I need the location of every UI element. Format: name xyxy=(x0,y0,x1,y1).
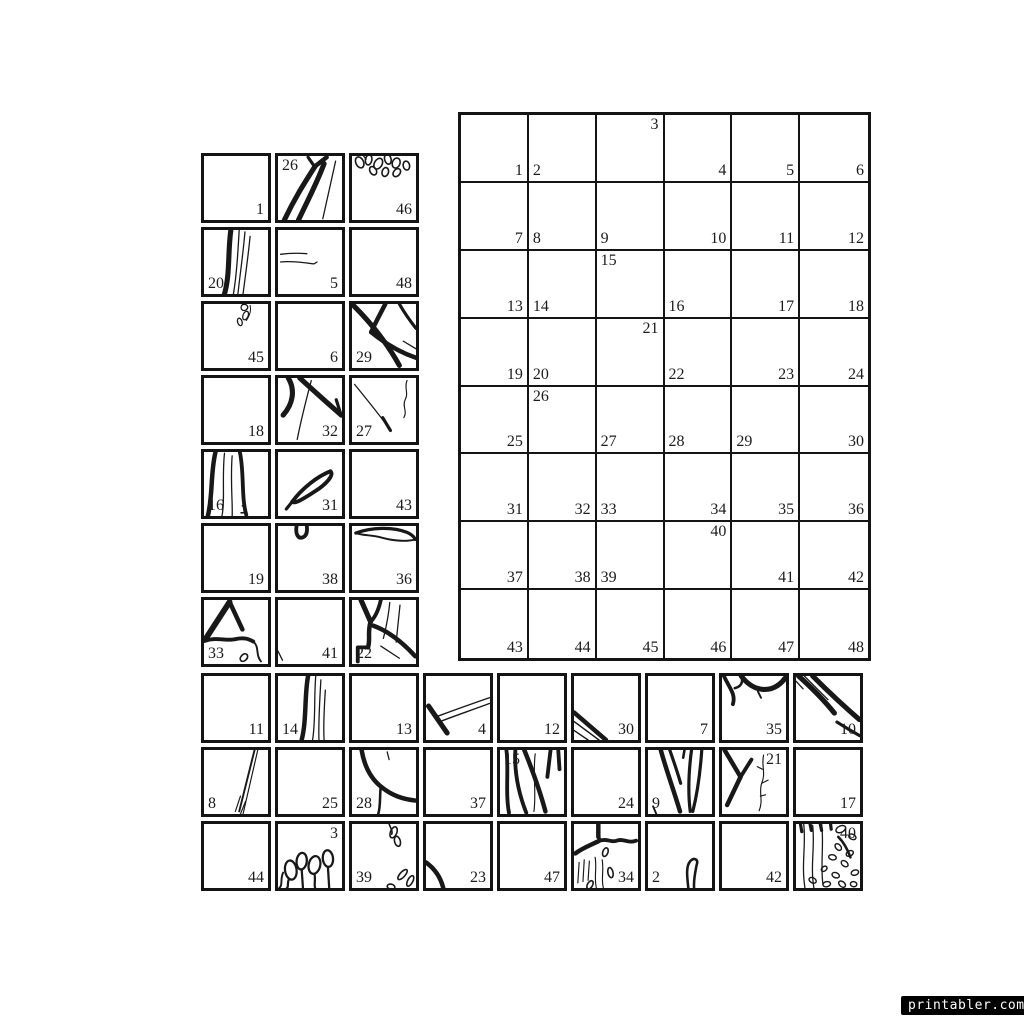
puzzle-tile-11: 11 xyxy=(201,673,271,743)
grid-cell-10: 10 xyxy=(665,183,733,251)
puzzle-tile-5: 5 xyxy=(275,227,345,297)
puzzle-tile-16: 16 xyxy=(201,449,271,519)
grid-cell-17: 17 xyxy=(732,251,800,319)
grid-cell-number: 19 xyxy=(507,367,523,383)
tile-number: 38 xyxy=(322,572,338,588)
grid-cell-34: 34 xyxy=(665,454,733,522)
grid-cell-number: 6 xyxy=(856,163,864,179)
grid-cell-number: 41 xyxy=(778,570,794,586)
tile-number: 44 xyxy=(248,870,264,886)
puzzle-tile-27: 27 xyxy=(349,375,419,445)
puzzle-tile-19: 19 xyxy=(201,523,271,593)
tile-number: 1 xyxy=(256,202,264,218)
tile-number: 23 xyxy=(470,870,486,886)
grid-cell-16: 16 xyxy=(665,251,733,319)
grid-cell-number: 10 xyxy=(710,231,726,247)
puzzle-tile-14: 14 xyxy=(275,673,345,743)
grid-cell-38: 38 xyxy=(529,522,597,590)
grid-cell-14: 14 xyxy=(529,251,597,319)
grid-cell-number: 40 xyxy=(710,524,726,540)
tile-number: 33 xyxy=(208,646,224,662)
tile-number: 5 xyxy=(330,276,338,292)
puzzle-tile-2: 2 xyxy=(645,821,715,891)
tile-number: 24 xyxy=(618,796,634,812)
tile-number: 48 xyxy=(396,276,412,292)
grid-cell-number: 44 xyxy=(575,640,591,656)
grid-cell-23: 23 xyxy=(732,319,800,387)
grid-cell-number: 26 xyxy=(533,389,549,405)
puzzle-tile-4: 4 xyxy=(423,673,493,743)
tile-number: 47 xyxy=(544,870,560,886)
worksheet-page: 126462054845629183227163143193836334122 … xyxy=(0,0,1024,1024)
grid-cell-number: 34 xyxy=(710,502,726,518)
grid-cell-number: 30 xyxy=(848,434,864,450)
grid-cell-41: 41 xyxy=(732,522,800,590)
grid-cell-number: 27 xyxy=(601,434,617,450)
grid-cell-number: 22 xyxy=(669,367,685,383)
puzzle-tile-26: 26 xyxy=(275,153,345,223)
puzzle-tile-34: 34 xyxy=(571,821,641,891)
grid-cell-number: 24 xyxy=(848,367,864,383)
grid-cell-2: 2 xyxy=(529,115,597,183)
grid-cell-33: 33 xyxy=(597,454,665,522)
grid-cell-4: 4 xyxy=(665,115,733,183)
grid-cell-number: 33 xyxy=(601,502,617,518)
tile-number: 26 xyxy=(282,158,298,174)
grid-cell-45: 45 xyxy=(597,590,665,658)
tile-number: 16 xyxy=(208,498,224,514)
grid-cell-29: 29 xyxy=(732,387,800,455)
puzzle-tile-25: 25 xyxy=(275,747,345,817)
grid-cell-37: 37 xyxy=(461,522,529,590)
tile-number: 11 xyxy=(249,722,264,738)
grid-cell-number: 15 xyxy=(601,253,617,269)
grid-cell-number: 42 xyxy=(848,570,864,586)
puzzle-tile-6: 6 xyxy=(275,301,345,371)
puzzle-tile-15: 15 xyxy=(497,747,567,817)
grid-cell-number: 31 xyxy=(507,502,523,518)
grid-cell-number: 32 xyxy=(575,502,591,518)
grid-cell-35: 35 xyxy=(732,454,800,522)
grid-cell-18: 18 xyxy=(800,251,868,319)
grid-cell-25: 25 xyxy=(461,387,529,455)
puzzle-tile-45: 45 xyxy=(201,301,271,371)
grid-cell-20: 20 xyxy=(529,319,597,387)
tile-number: 31 xyxy=(322,498,338,514)
tile-number: 22 xyxy=(356,646,372,662)
grid-cell-number: 20 xyxy=(533,367,549,383)
puzzle-tile-24: 24 xyxy=(571,747,641,817)
grid-cell-43: 43 xyxy=(461,590,529,658)
puzzle-tile-38: 38 xyxy=(275,523,345,593)
tile-number: 46 xyxy=(396,202,412,218)
puzzle-tile-28: 28 xyxy=(349,747,419,817)
grid-cell-number: 16 xyxy=(669,299,685,315)
grid-cell-19: 19 xyxy=(461,319,529,387)
grid-cell-27: 27 xyxy=(597,387,665,455)
left-tile-group: 126462054845629183227163143193836334122 xyxy=(201,153,419,667)
puzzle-tile-31: 31 xyxy=(275,449,345,519)
tile-number: 14 xyxy=(282,722,298,738)
puzzle-tile-17: 17 xyxy=(793,747,863,817)
puzzle-tile-42: 42 xyxy=(719,821,789,891)
grid-cell-48: 48 xyxy=(800,590,868,658)
tile-number: 28 xyxy=(356,796,372,812)
grid-cell-1: 1 xyxy=(461,115,529,183)
grid-cell-number: 2 xyxy=(533,163,541,179)
grid-cell-number: 37 xyxy=(507,570,523,586)
grid-cell-number: 13 xyxy=(507,299,523,315)
puzzle-tile-12: 12 xyxy=(497,673,567,743)
grid-cell-13: 13 xyxy=(461,251,529,319)
tile-number: 27 xyxy=(356,424,372,440)
grid-cell-7: 7 xyxy=(461,183,529,251)
tile-number: 9 xyxy=(652,796,660,812)
puzzle-tile-13: 13 xyxy=(349,673,419,743)
puzzle-tile-47: 47 xyxy=(497,821,567,891)
puzzle-tile-18: 18 xyxy=(201,375,271,445)
grid-cell-number: 29 xyxy=(736,434,752,450)
tile-number: 43 xyxy=(396,498,412,514)
tile-number: 25 xyxy=(322,796,338,812)
grid-cell-number: 23 xyxy=(778,367,794,383)
grid-cell-44: 44 xyxy=(529,590,597,658)
puzzle-tile-10: 10 xyxy=(793,673,863,743)
grid-cell-26: 26 xyxy=(529,387,597,455)
grid-cell-number: 3 xyxy=(651,117,659,133)
grid-cell-number: 9 xyxy=(601,231,609,247)
grid-cell-number: 46 xyxy=(710,640,726,656)
puzzle-tile-43: 43 xyxy=(349,449,419,519)
grid-cell-30: 30 xyxy=(800,387,868,455)
puzzle-tile-44: 44 xyxy=(201,821,271,891)
puzzle-tile-46: 46 xyxy=(349,153,419,223)
puzzle-tile-39: 39 xyxy=(349,821,419,891)
puzzle-tile-40: 40 xyxy=(793,821,863,891)
tile-number: 18 xyxy=(248,424,264,440)
puzzle-tile-30: 30 xyxy=(571,673,641,743)
watermark-badge: printabler.com xyxy=(901,996,1024,1015)
tile-number: 36 xyxy=(396,572,412,588)
tile-number: 12 xyxy=(544,722,560,738)
puzzle-tile-48: 48 xyxy=(349,227,419,297)
tile-number: 40 xyxy=(840,826,856,842)
puzzle-tile-21: 21 xyxy=(719,747,789,817)
puzzle-tile-32: 32 xyxy=(275,375,345,445)
grid-cell-number: 5 xyxy=(786,163,794,179)
puzzle-tile-35: 35 xyxy=(719,673,789,743)
grid-cell-number: 43 xyxy=(507,640,523,656)
tile-number: 42 xyxy=(766,870,782,886)
tile-number: 19 xyxy=(248,572,264,588)
tile-number: 21 xyxy=(766,752,782,768)
puzzle-tile-7: 7 xyxy=(645,673,715,743)
grid-cell-24: 24 xyxy=(800,319,868,387)
grid-cell-number: 48 xyxy=(848,640,864,656)
mystery-grid: 1234567891011121314151617181920212223242… xyxy=(458,112,871,661)
grid-cell-number: 38 xyxy=(575,570,591,586)
grid-cell-number: 36 xyxy=(848,502,864,518)
grid-cell-40: 40 xyxy=(665,522,733,590)
grid-cell-8: 8 xyxy=(529,183,597,251)
tile-number: 6 xyxy=(330,350,338,366)
grid-cell-3: 3 xyxy=(597,115,665,183)
puzzle-tile-33: 33 xyxy=(201,597,271,667)
tile-number: 41 xyxy=(322,646,338,662)
grid-cell-32: 32 xyxy=(529,454,597,522)
grid-cell-9: 9 xyxy=(597,183,665,251)
watermark-text: printabler.com xyxy=(908,998,1024,1013)
puzzle-tile-23: 23 xyxy=(423,821,493,891)
puzzle-tile-41: 41 xyxy=(275,597,345,667)
grid-cell-number: 47 xyxy=(778,640,794,656)
tile-number: 32 xyxy=(322,424,338,440)
tile-number: 35 xyxy=(766,722,782,738)
grid-cell-number: 12 xyxy=(848,231,864,247)
grid-cell-number: 7 xyxy=(515,231,523,247)
grid-cell-5: 5 xyxy=(732,115,800,183)
tile-number: 3 xyxy=(330,826,338,842)
grid-cell-number: 8 xyxy=(533,231,541,247)
puzzle-tile-3: 3 xyxy=(275,821,345,891)
grid-cell-42: 42 xyxy=(800,522,868,590)
grid-cell-number: 14 xyxy=(533,299,549,315)
tile-number: 39 xyxy=(356,870,372,886)
grid-cell-31: 31 xyxy=(461,454,529,522)
grid-cell-28: 28 xyxy=(665,387,733,455)
grid-cell-number: 1 xyxy=(515,163,523,179)
grid-cell-number: 39 xyxy=(601,570,617,586)
tile-number: 13 xyxy=(396,722,412,738)
grid-cell-22: 22 xyxy=(665,319,733,387)
tile-number: 15 xyxy=(504,752,520,768)
grid-cell-number: 18 xyxy=(848,299,864,315)
tile-number: 29 xyxy=(356,350,372,366)
grid-cell-number: 25 xyxy=(507,434,523,450)
grid-cell-15: 15 xyxy=(597,251,665,319)
grid-cell-46: 46 xyxy=(665,590,733,658)
tile-number: 4 xyxy=(478,722,486,738)
puzzle-tile-1: 1 xyxy=(201,153,271,223)
grid-cell-number: 11 xyxy=(779,231,794,247)
tile-number: 34 xyxy=(618,870,634,886)
puzzle-tile-8: 8 xyxy=(201,747,271,817)
puzzle-tile-29: 29 xyxy=(349,301,419,371)
tile-number: 30 xyxy=(618,722,634,738)
grid-cell-47: 47 xyxy=(732,590,800,658)
grid-cell-12: 12 xyxy=(800,183,868,251)
bottom-tile-group: 1114134123073510825283715249211744339234… xyxy=(201,673,863,891)
grid-cell-21: 21 xyxy=(597,319,665,387)
grid-cell-number: 4 xyxy=(718,163,726,179)
tile-number: 17 xyxy=(840,796,856,812)
tile-number: 45 xyxy=(248,350,264,366)
tile-number: 2 xyxy=(652,870,660,886)
tile-number: 8 xyxy=(208,796,216,812)
grid-cell-6: 6 xyxy=(800,115,868,183)
grid-cell-number: 17 xyxy=(778,299,794,315)
tile-number: 37 xyxy=(470,796,486,812)
puzzle-tile-20: 20 xyxy=(201,227,271,297)
grid-cell-number: 45 xyxy=(643,640,659,656)
tile-number: 7 xyxy=(700,722,708,738)
grid-cell-number: 28 xyxy=(669,434,685,450)
grid-cell-11: 11 xyxy=(732,183,800,251)
tile-number: 20 xyxy=(208,276,224,292)
puzzle-tile-9: 9 xyxy=(645,747,715,817)
grid-cell-39: 39 xyxy=(597,522,665,590)
puzzle-tile-22: 22 xyxy=(349,597,419,667)
grid-cell-36: 36 xyxy=(800,454,868,522)
grid-cell-number: 35 xyxy=(778,502,794,518)
puzzle-tile-37: 37 xyxy=(423,747,493,817)
grid-cell-number: 21 xyxy=(643,321,659,337)
puzzle-tile-36: 36 xyxy=(349,523,419,593)
tile-number: 10 xyxy=(840,722,856,738)
